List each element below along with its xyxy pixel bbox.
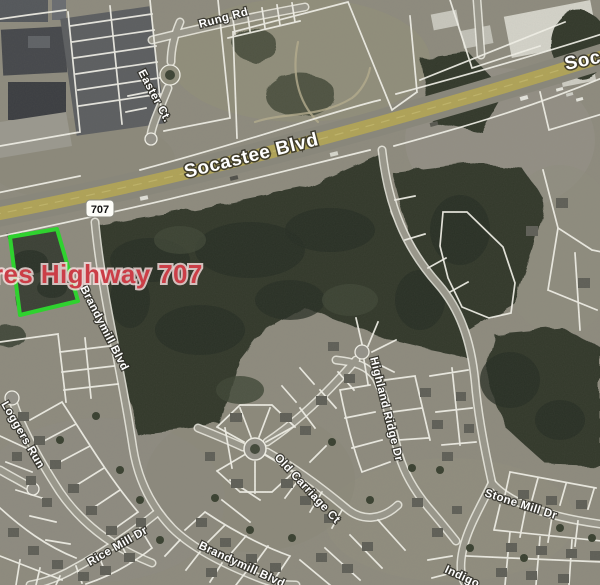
route-shield-707: 707 [86, 200, 114, 217]
map-canvas[interactable]: 707 Socastee Blvd Soca Rung Rd Easter Ct… [0, 0, 600, 585]
route-shield-number: 707 [91, 204, 109, 216]
parcel-annotation-label: res Highway 707 [0, 259, 203, 289]
satellite-map-viewport[interactable]: 707 Socastee Blvd Soca Rung Rd Easter Ct… [0, 0, 600, 585]
